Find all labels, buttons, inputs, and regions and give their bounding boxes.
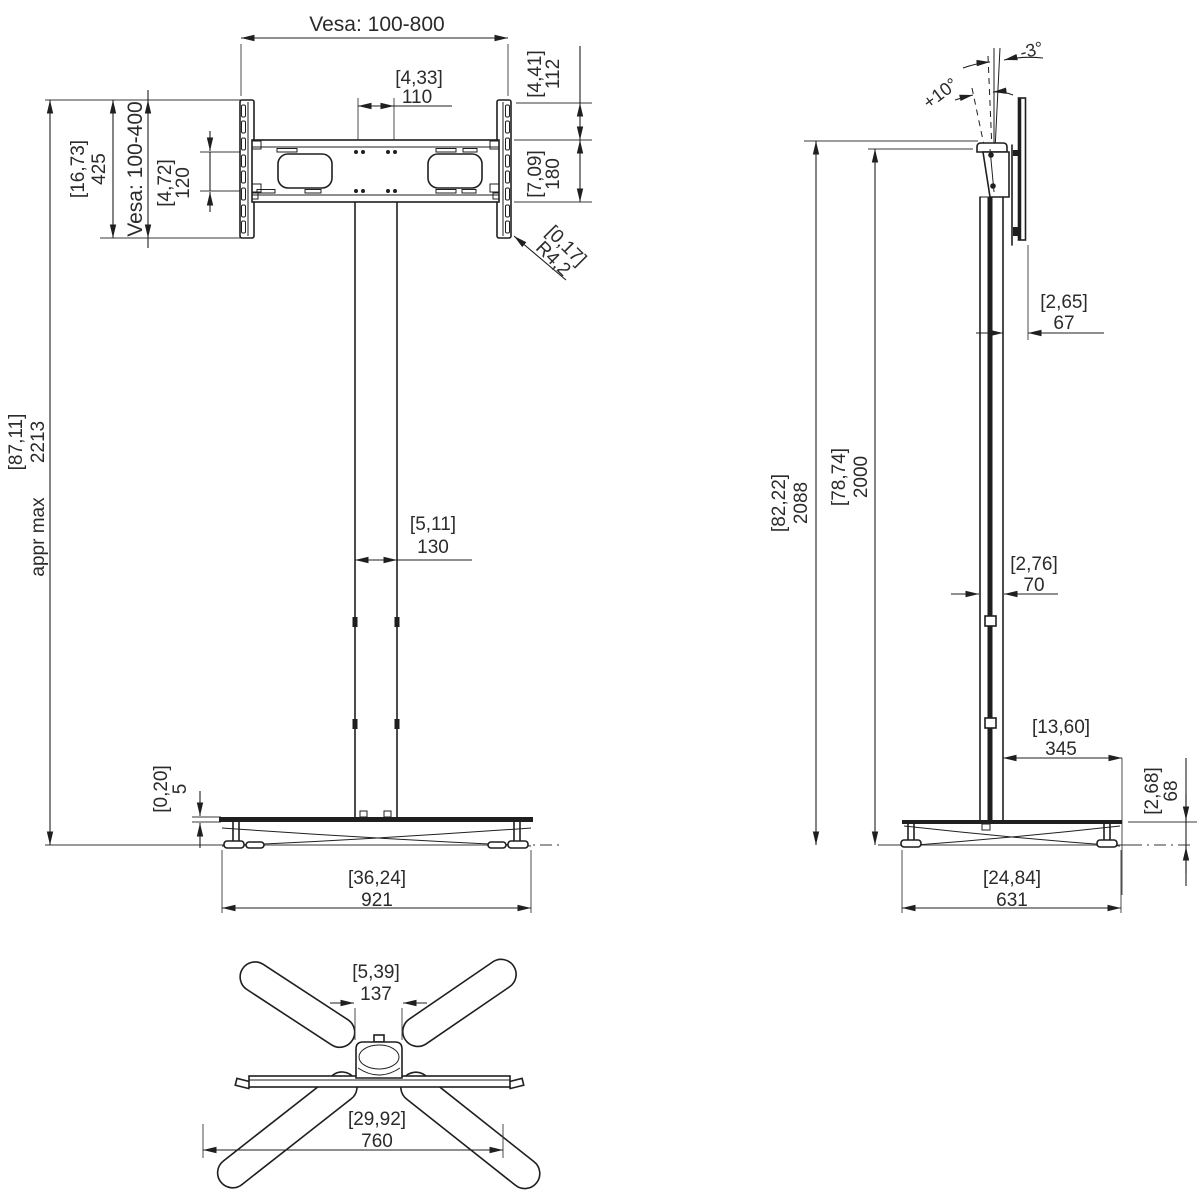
dim-front-plate-thickness-mm: 5 — [170, 784, 191, 795]
front-base — [219, 817, 533, 848]
dim-front-hole-spacing-in: [4,33] — [395, 68, 443, 89]
dim-side-column-height-in: [78,74] — [829, 448, 850, 506]
dim-side-column-depth-mm: 70 — [1023, 575, 1044, 596]
front-column — [353, 202, 400, 817]
front-view: Vesa: 100-800 [4,33] 110 [4,41] 112 [16,… — [6, 13, 592, 913]
dim-bottom-hub-width-in: [5,39] — [352, 962, 400, 983]
dim-front-vesa-width: Vesa: 100-800 — [309, 13, 444, 36]
side-view: -3° +10° [2,65] 67 [82,22] 2088 [78,74] … — [769, 38, 1197, 913]
side-mount-head — [977, 98, 1026, 245]
dim-front-max-height-in: [87,11] — [6, 414, 27, 471]
dim-front-bracket-height-in: [16,73] — [68, 140, 89, 198]
dim-side-total-height-mm: 2088 — [791, 482, 812, 524]
dim-front-base-width-mm: 921 — [361, 890, 393, 911]
dim-side-base-height-in: [2,68] — [1142, 767, 1163, 815]
dim-side-mount-depth-in: [2,65] — [1040, 292, 1088, 313]
dim-side-base-height-mm: 68 — [1161, 780, 1182, 801]
side-dimension-lines — [816, 141, 1186, 908]
dim-side-column-height-mm: 2000 — [851, 456, 872, 498]
dim-side-total-height-in: [82,22] — [769, 474, 790, 532]
dim-front-column-width-mm: 130 — [417, 537, 449, 558]
dim-bottom-foot-spread-in: [29,92] — [348, 1109, 406, 1130]
side-column — [980, 197, 1003, 830]
dim-front-top-section-mm: 112 — [543, 59, 564, 89]
dim-side-column-depth-in: [2,76] — [1010, 554, 1058, 575]
side-base — [901, 820, 1122, 847]
front-bracket — [240, 100, 511, 238]
dim-bottom-hub-width-mm: 137 — [360, 984, 392, 1005]
dim-side-base-rear-reach-in: [13,60] — [1032, 717, 1090, 738]
side-extension-lines — [804, 141, 1197, 913]
dim-side-tilt-forward: +10° — [919, 74, 961, 113]
dim-side-mount-depth-mm: 67 — [1053, 313, 1074, 334]
dim-front-hole-spacing-mm: 110 — [402, 87, 432, 108]
dim-side-base-rear-reach-mm: 345 — [1045, 739, 1077, 760]
bottom-hub — [356, 1035, 402, 1078]
dim-front-bracket-height-mm: 425 — [89, 153, 110, 185]
dim-bottom-foot-spread-mm: 760 — [361, 1131, 393, 1152]
technical-drawing-page: Vesa: 100-800 [4,33] 110 [4,41] 112 [16,… — [0, 0, 1200, 1200]
dim-side-tilt-back: -3° — [1018, 38, 1045, 63]
dim-front-vesa-height: Vesa: 100-400 — [124, 101, 147, 236]
dim-front-base-width-in: [36,24] — [348, 868, 406, 889]
dim-front-hole-rows-mm: 120 — [173, 167, 194, 199]
dim-front-column-width-in: [5,11] — [410, 514, 456, 535]
tv-stand-dimension-drawing: Vesa: 100-800 [4,33] 110 [4,41] 112 [16,… — [0, 0, 1200, 1200]
dim-front-plate-thickness-in: [0,20] — [151, 765, 172, 813]
dim-front-max-height-note: appr max — [28, 497, 49, 577]
dim-side-base-depth-in: [24,84] — [983, 868, 1041, 889]
bottom-view: [5,39] 137 [29,92] 760 — [203, 954, 546, 1195]
dim-side-base-depth-mm: 631 — [996, 890, 1028, 911]
dim-front-lower-section-mm: 180 — [543, 158, 564, 190]
dim-front-max-height-mm: 2213 — [28, 421, 49, 463]
